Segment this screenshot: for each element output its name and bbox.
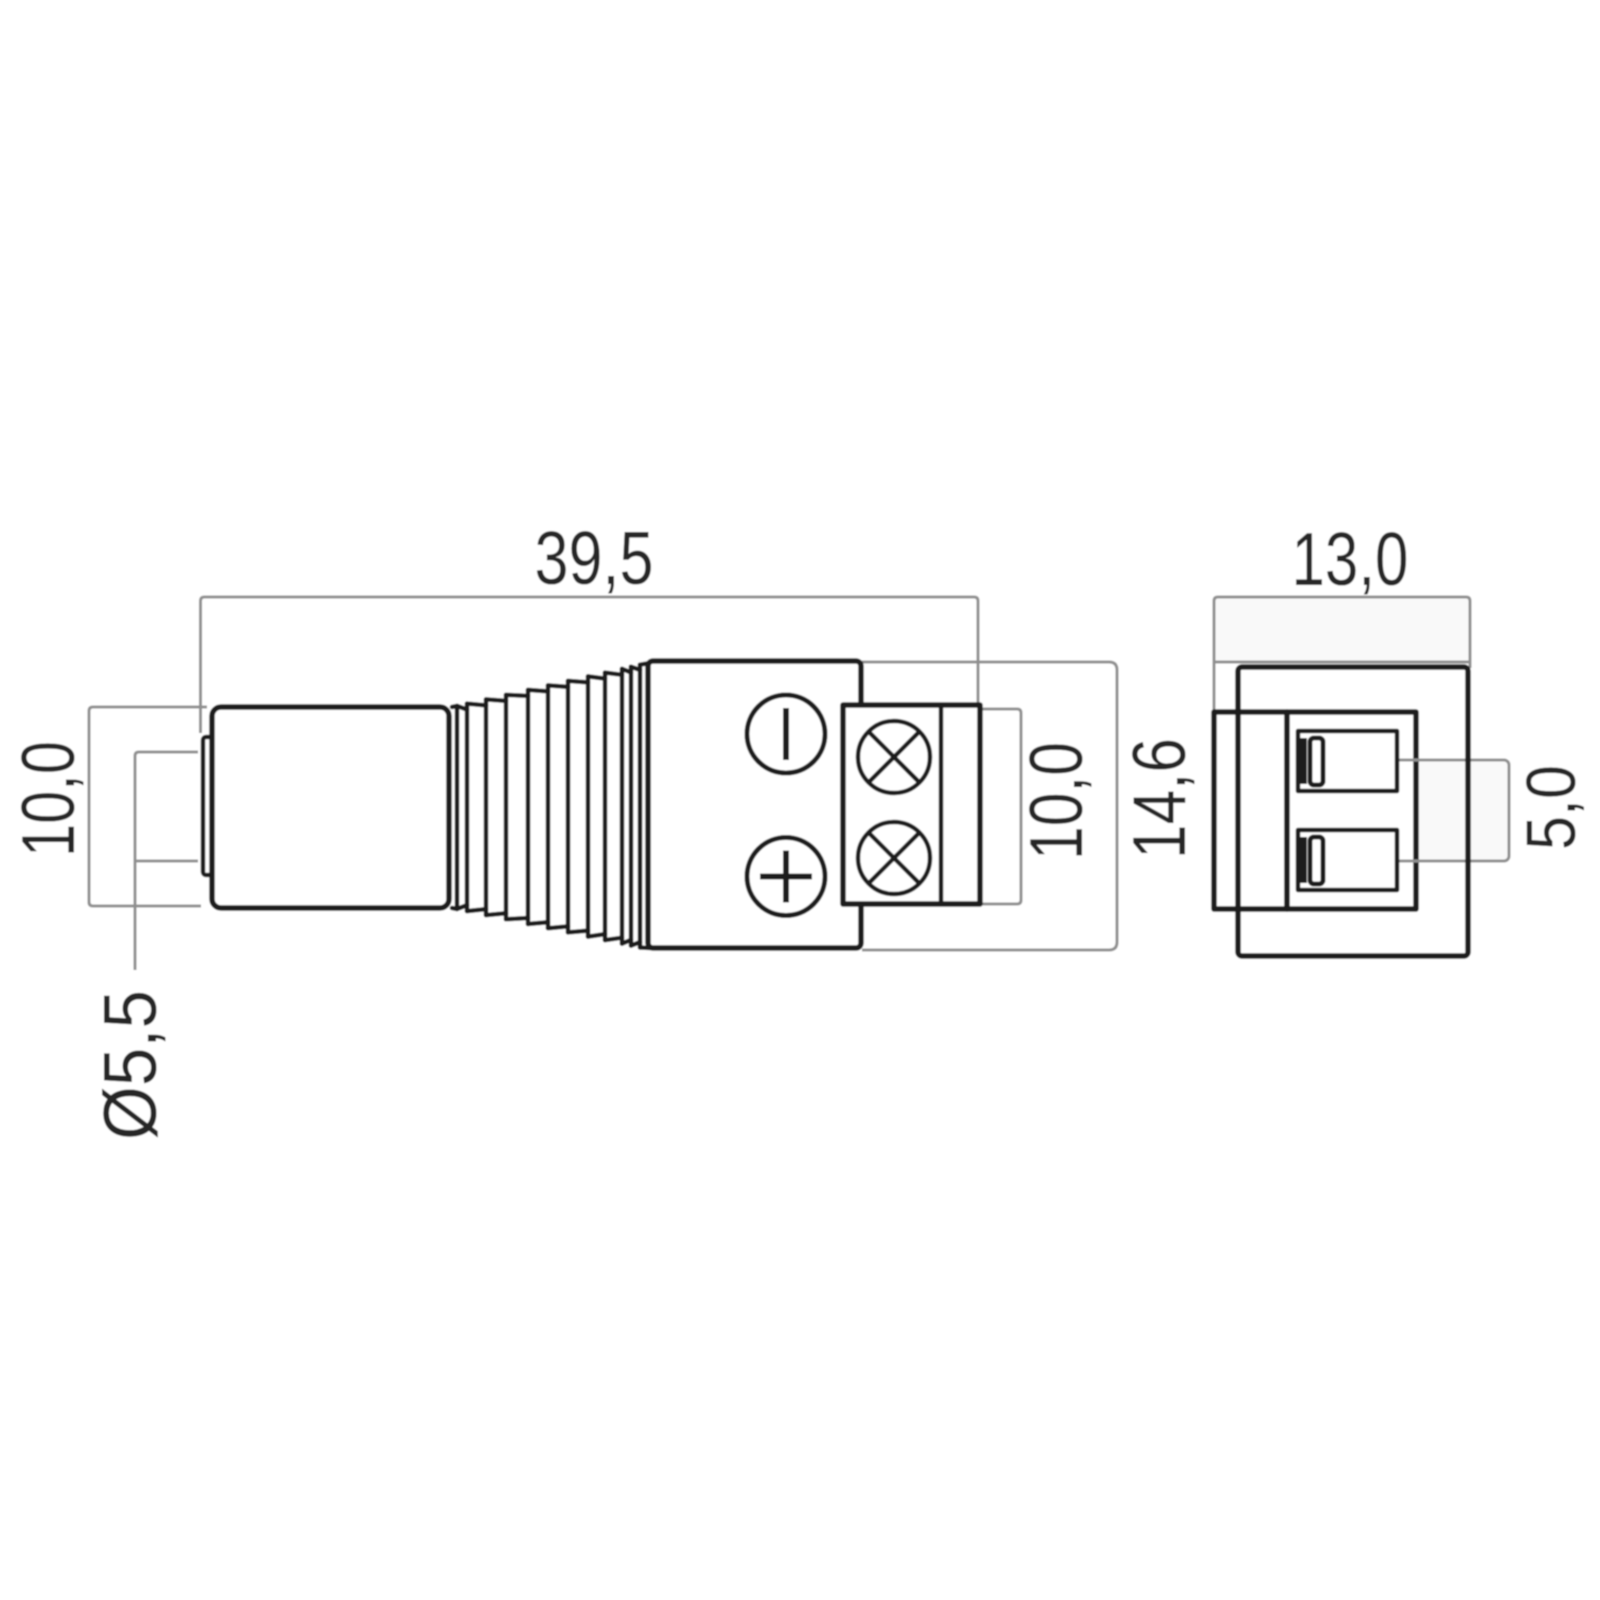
svg-text:13,0: 13,0 — [1292, 517, 1409, 601]
svg-text:39,5: 39,5 — [535, 516, 654, 600]
svg-text:10,0: 10,0 — [6, 741, 90, 857]
svg-text:10,0: 10,0 — [1014, 742, 1098, 860]
svg-text:14,6: 14,6 — [1117, 738, 1201, 859]
svg-text:Ø5,5: Ø5,5 — [88, 990, 172, 1140]
svg-text:5,0: 5,0 — [1512, 765, 1590, 850]
